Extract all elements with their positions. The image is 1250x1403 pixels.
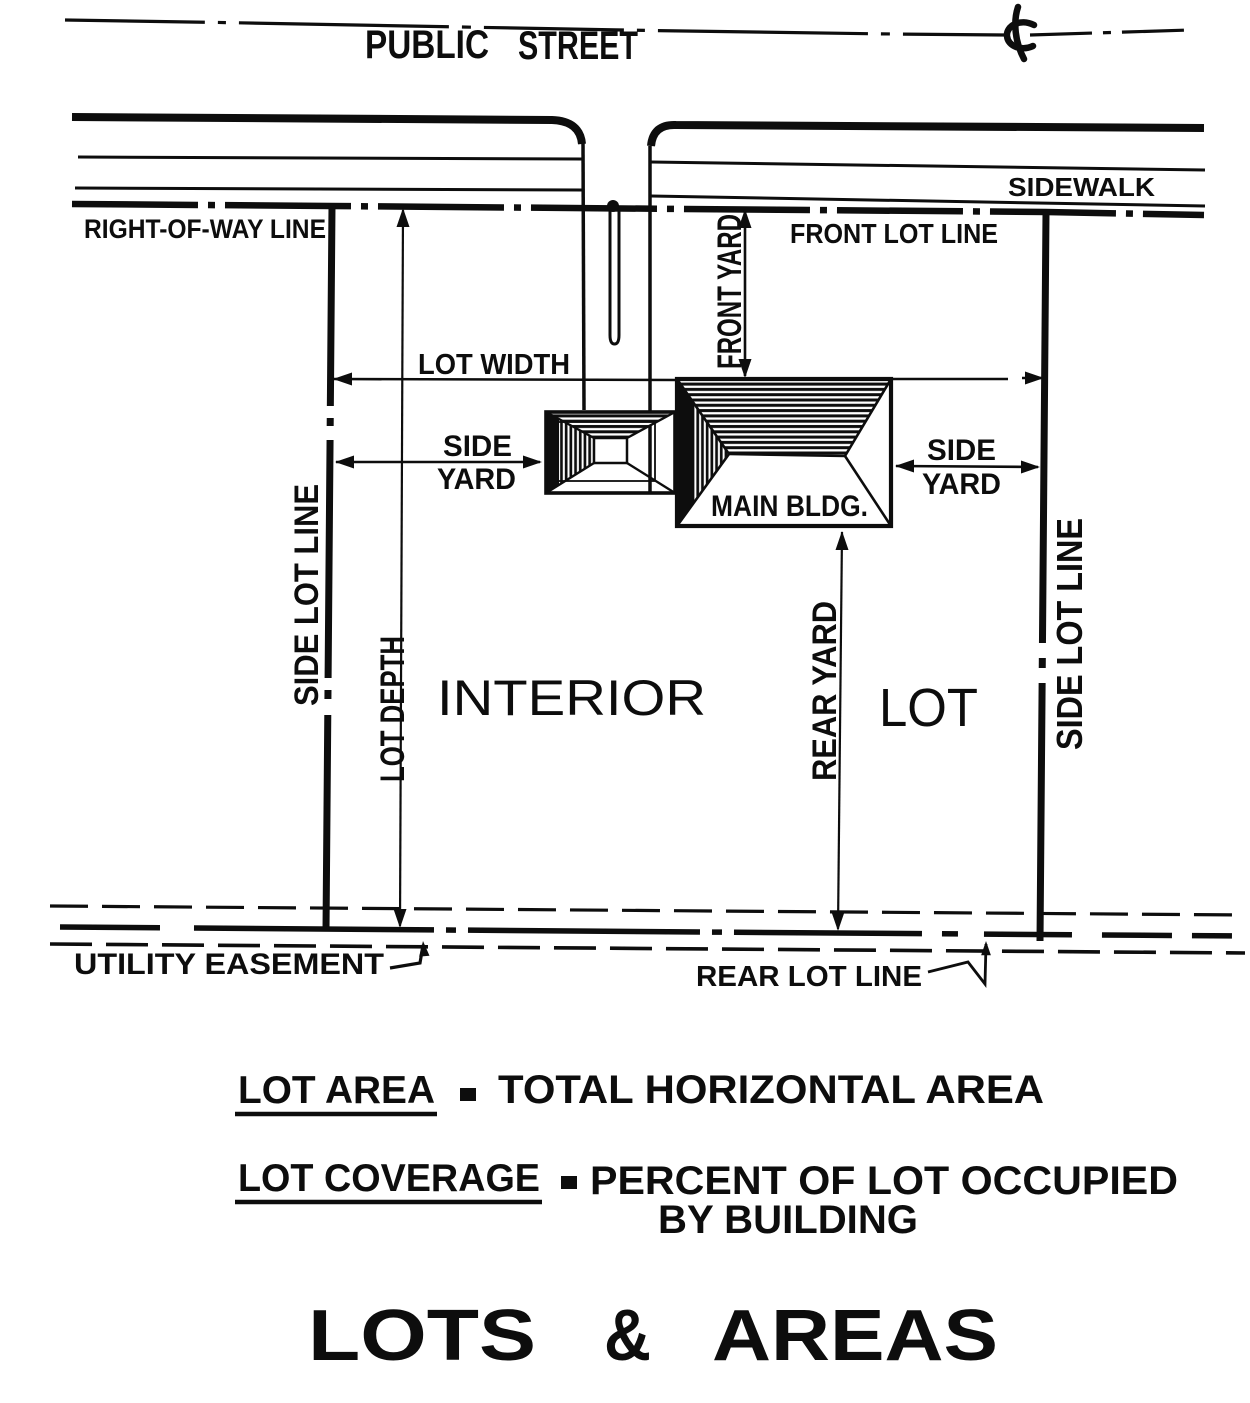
svg-text:REAR YARD: REAR YARD <box>806 601 844 781</box>
svg-text:SIDE LOT LINE: SIDE LOT LINE <box>1049 518 1090 750</box>
svg-text:UTILITY EASEMENT: UTILITY EASEMENT <box>74 948 384 981</box>
svg-text:AREAS: AREAS <box>712 1296 998 1376</box>
svg-text:SIDE: SIDE <box>443 430 512 463</box>
svg-text:LOT WIDTH: LOT WIDTH <box>418 349 570 381</box>
svg-text:MAIN BLDG.: MAIN BLDG. <box>711 490 868 523</box>
svg-text:PUBLIC: PUBLIC <box>365 23 489 67</box>
svg-text:STREET: STREET <box>518 24 638 68</box>
svg-text:YARD: YARD <box>922 468 1001 501</box>
svg-text:LOT COVERAGE: LOT COVERAGE <box>238 1157 540 1200</box>
svg-text:SIDEWALK: SIDEWALK <box>1008 172 1155 202</box>
svg-text:LOTS: LOTS <box>308 1296 536 1376</box>
svg-text:FRONT LOT LINE: FRONT LOT LINE <box>790 218 998 249</box>
svg-text:LOT: LOT <box>879 678 978 738</box>
svg-text:BY BUILDING: BY BUILDING <box>658 1198 918 1242</box>
svg-text:RIGHT-OF-WAY LINE: RIGHT-OF-WAY LINE <box>84 214 326 244</box>
svg-text:PERCENT OF LOT OCCUPIED: PERCENT OF LOT OCCUPIED <box>590 1159 1178 1203</box>
svg-text:SIDE: SIDE <box>927 434 996 467</box>
svg-text:INTERIOR: INTERIOR <box>437 670 706 726</box>
svg-text:LOT DEPTH: LOT DEPTH <box>374 636 412 782</box>
svg-text:YARD: YARD <box>437 463 516 496</box>
svg-text:&: & <box>604 1296 651 1376</box>
svg-text:REAR LOT LINE: REAR LOT LINE <box>696 961 922 993</box>
svg-text:TOTAL HORIZONTAL AREA: TOTAL HORIZONTAL AREA <box>498 1068 1044 1112</box>
svg-text:LOT AREA: LOT AREA <box>238 1069 435 1112</box>
svg-text:FRONT YARD: FRONT YARD <box>711 214 749 369</box>
svg-text:SIDE LOT LINE: SIDE LOT LINE <box>288 484 326 706</box>
